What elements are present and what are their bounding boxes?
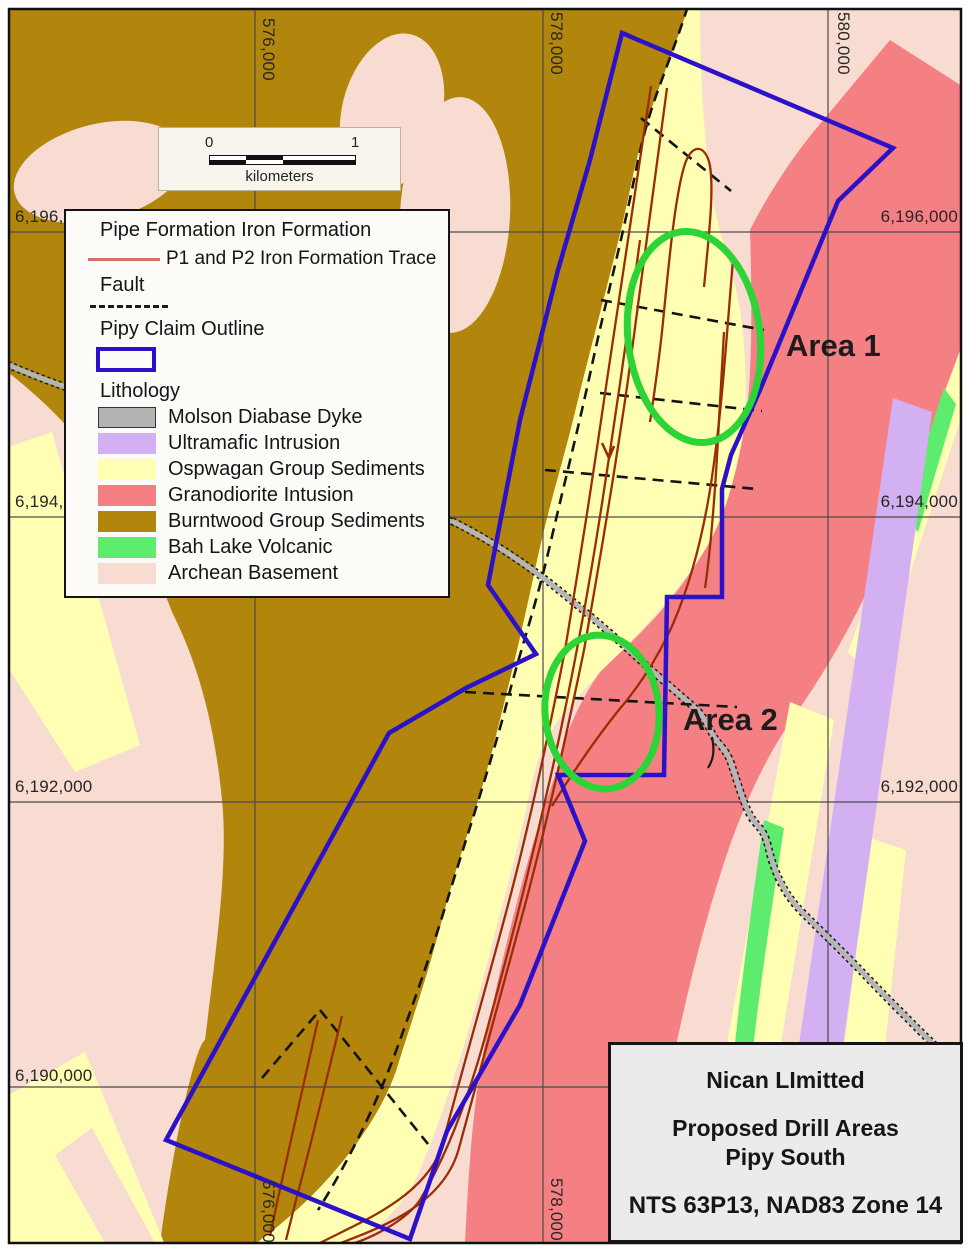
grid-label-right: 6,196,000 <box>881 207 958 227</box>
legend-litho-row: Bah Lake Volcanic <box>98 537 448 558</box>
legend-litho-row: Granodiorite Intusion <box>98 485 448 506</box>
map-title-line1: Proposed Drill Areas <box>672 1114 899 1143</box>
scale-bar: 0 1 kilometers <box>158 127 401 191</box>
litho-swatch-burntwood <box>98 511 156 532</box>
legend-litho-row: Ospwagan Group Sediments <box>98 459 448 480</box>
legend-box: Pipe Formation Iron Formation P1 and P2 … <box>64 209 450 598</box>
grid-label-bottom: 578,000 <box>546 1178 566 1241</box>
legend-litho-row: Molson Diabase Dyke <box>98 407 448 428</box>
scale-zero-label: 0 <box>205 134 213 151</box>
scale-bar-graphic <box>209 155 356 165</box>
scale-one-label: 1 <box>351 134 359 151</box>
legend-trace-row: P1 and P2 Iron Formation Trace <box>88 248 448 270</box>
iron-formation-trace-label: P1 and P2 Iron Formation Trace <box>166 248 436 270</box>
grid-label-right: 6,192,000 <box>881 777 958 797</box>
company-name: Nican LImitted <box>706 1067 864 1094</box>
grid-label-left: 6,190,000 <box>15 1066 92 1086</box>
litho-swatch-ospwagan <box>98 459 156 480</box>
legend-litho-row: Burntwood Group Sediments <box>98 511 448 532</box>
geology-map-page: 576,000 578,000 580,000 576,000 578,000 … <box>0 0 976 1252</box>
litho-label: Molson Diabase Dyke <box>168 406 363 429</box>
litho-label: Granodiorite Intusion <box>168 484 354 507</box>
legend-fault-label: Fault <box>100 274 448 297</box>
grid-label-right: 6,194,000 <box>881 492 958 512</box>
litho-swatch-archean <box>98 563 156 584</box>
litho-swatch-molson <box>98 407 156 428</box>
litho-swatch-granodiorite <box>98 485 156 506</box>
scale-units-label: kilometers <box>159 168 400 185</box>
area2-label: Area 2 <box>683 702 778 738</box>
map-reference: NTS 63P13, NAD83 Zone 14 <box>629 1192 942 1220</box>
litho-swatch-ultramafic <box>98 433 156 454</box>
legend-litho-row: Archean Basement <box>98 563 448 584</box>
litho-label: Bah Lake Volcanic <box>168 536 333 559</box>
grid-label-top: 576,000 <box>258 18 278 81</box>
title-block: Nican LImitted Proposed Drill Areas Pipy… <box>608 1042 963 1243</box>
fault-symbol <box>90 305 168 308</box>
legend-lithology-title: Lithology <box>100 380 448 403</box>
grid-label-top: 578,000 <box>546 12 566 75</box>
litho-label: Burntwood Group Sediments <box>168 510 425 533</box>
claim-outline-symbol <box>96 347 156 372</box>
map-title-line2: Pipy South <box>672 1143 899 1172</box>
grid-label-bottom: 576,000 <box>258 1180 278 1243</box>
area1-label: Area 1 <box>786 328 881 364</box>
legend-litho-row: Ultramafic Intrusion <box>98 433 448 454</box>
legend-claim-label: Pipy Claim Outline <box>100 318 448 341</box>
iron-formation-trace-symbol <box>88 258 160 261</box>
litho-label: Ospwagan Group Sediments <box>168 458 425 481</box>
grid-label-left: 6,192,000 <box>15 777 92 797</box>
litho-label: Ultramafic Intrusion <box>168 432 340 455</box>
litho-swatch-bah-lake <box>98 537 156 558</box>
litho-label: Archean Basement <box>168 562 338 585</box>
legend-iron-formation-title: Pipe Formation Iron Formation <box>100 219 448 242</box>
grid-label-top: 580,000 <box>833 12 853 75</box>
